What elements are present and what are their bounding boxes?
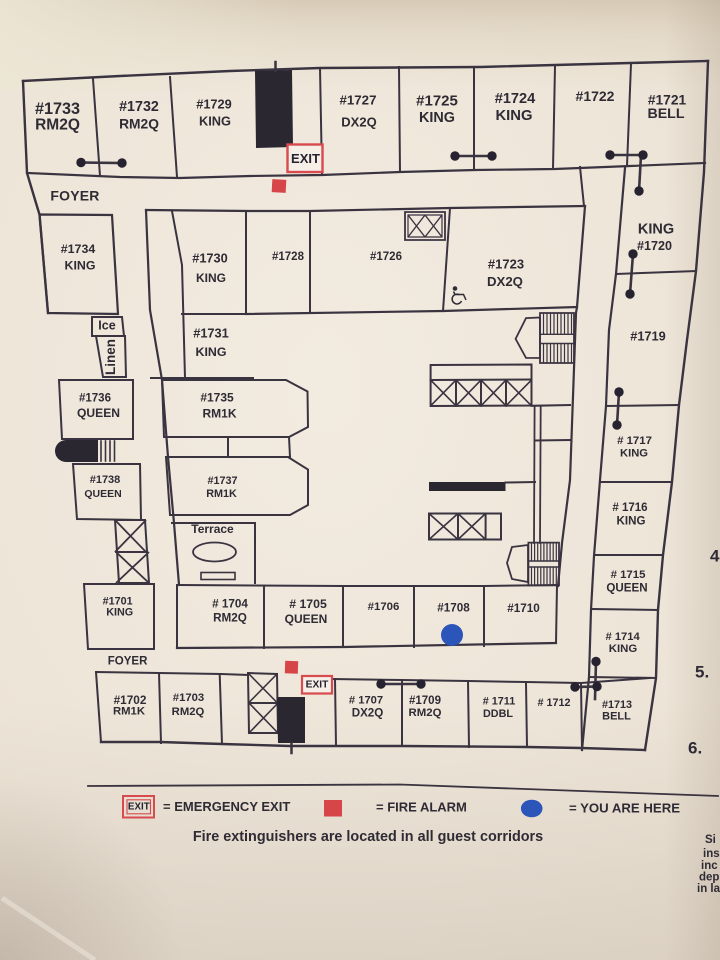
svg-text:# 1714: # 1714 (605, 631, 640, 643)
svg-text:#1703: #1703 (173, 692, 204, 704)
svg-text:BELL: BELL (647, 106, 684, 122)
svg-text:dep: dep (699, 872, 719, 884)
svg-text:Ice: Ice (98, 319, 115, 333)
svg-text:RM2Q: RM2Q (119, 117, 159, 132)
svg-text:QUEEN: QUEEN (77, 406, 120, 420)
svg-text:#1735: #1735 (200, 391, 234, 405)
svg-text:RM2Q: RM2Q (213, 612, 247, 625)
svg-text:KING: KING (196, 345, 227, 359)
svg-text:# 1717: # 1717 (617, 435, 652, 447)
svg-text:#1726: #1726 (370, 251, 402, 263)
svg-text:KING: KING (609, 643, 638, 655)
svg-text:KING: KING (496, 108, 533, 124)
svg-text:#1706: #1706 (368, 601, 400, 613)
svg-text:#1724: #1724 (495, 91, 536, 107)
svg-text:#1729: #1729 (196, 97, 232, 112)
svg-text:EXIT: EXIT (128, 802, 150, 813)
svg-text:BELL: BELL (602, 711, 631, 723)
svg-text:#1728: #1728 (272, 251, 305, 263)
svg-text:5.: 5. (695, 663, 709, 682)
svg-text:# 1711: # 1711 (483, 696, 515, 708)
svg-text:QUEEN: QUEEN (285, 612, 328, 626)
svg-text:#1730: #1730 (192, 251, 228, 266)
svg-text:= YOU ARE HERE: = YOU ARE HERE (569, 801, 680, 816)
svg-text:Linen: Linen (103, 339, 118, 375)
svg-text:#1720: #1720 (637, 239, 672, 253)
svg-text:inc: inc (701, 860, 718, 872)
svg-text:#1736: #1736 (79, 393, 111, 405)
svg-text:FOYER: FOYER (50, 188, 99, 204)
svg-text:DX2Q: DX2Q (341, 115, 376, 130)
svg-text:RM2Q: RM2Q (409, 707, 442, 719)
svg-text:RM2Q: RM2Q (172, 706, 205, 718)
svg-text:= FIRE ALARM: = FIRE ALARM (376, 799, 467, 814)
svg-text:EXIT: EXIT (291, 151, 320, 166)
svg-text:KING: KING (620, 448, 648, 460)
svg-text:# 1704: # 1704 (212, 598, 248, 611)
svg-text:#1708: #1708 (437, 602, 470, 615)
svg-text:ins: ins (703, 848, 720, 860)
svg-text:QUEEN: QUEEN (606, 582, 647, 595)
svg-text:#1737: #1737 (207, 475, 237, 487)
svg-text:#1734: #1734 (61, 242, 96, 256)
svg-text:#1710: #1710 (507, 602, 540, 615)
svg-text:# 1715: # 1715 (611, 569, 647, 581)
svg-text:#1709: #1709 (409, 695, 441, 707)
svg-text:Fire extinguishers are located: Fire extinguishers are located in all gu… (193, 829, 543, 845)
svg-text:# 1707: # 1707 (349, 695, 383, 707)
svg-text:4.: 4. (710, 547, 720, 566)
svg-text:DDBL: DDBL (483, 708, 513, 720)
svg-text:#1723: #1723 (488, 257, 524, 272)
svg-text:#1713: #1713 (602, 699, 632, 711)
svg-text:KING: KING (199, 114, 231, 129)
svg-text:#1725: #1725 (416, 93, 458, 110)
svg-text:RM1K: RM1K (206, 488, 237, 500)
svg-text:KING: KING (196, 271, 226, 285)
svg-text:# 1712: # 1712 (537, 697, 570, 709)
svg-text:KING: KING (617, 515, 646, 528)
svg-text:Terrace: Terrace (191, 522, 234, 536)
svg-text:#1719: #1719 (630, 329, 666, 344)
svg-text:FOYER: FOYER (108, 656, 148, 668)
svg-text:#1727: #1727 (340, 93, 377, 108)
svg-text:DX2Q: DX2Q (352, 707, 384, 720)
svg-text:# 1716: # 1716 (612, 502, 647, 514)
svg-text:#1722: #1722 (576, 88, 615, 104)
svg-text:in la: in la (697, 883, 720, 895)
svg-text:#1732: #1732 (119, 99, 159, 115)
svg-text:#1738: #1738 (90, 474, 121, 486)
svg-text:6.: 6. (688, 739, 702, 758)
svg-text:KING: KING (65, 259, 96, 273)
svg-text:DX2Q: DX2Q (487, 274, 523, 289)
svg-text:KING: KING (638, 222, 674, 238)
svg-text:= EMERGENCY EXIT: = EMERGENCY EXIT (163, 799, 290, 814)
svg-text:# 1705: # 1705 (289, 597, 327, 611)
svg-text:#1731: #1731 (193, 326, 229, 341)
svg-text:RM2Q: RM2Q (35, 117, 80, 134)
svg-text:KING: KING (419, 110, 455, 126)
svg-text:RM1K: RM1K (113, 706, 146, 718)
svg-text:Si: Si (705, 834, 716, 846)
svg-text:KING: KING (106, 607, 133, 619)
svg-text:EXIT: EXIT (306, 679, 329, 690)
svg-text:QUEEN: QUEEN (84, 488, 121, 500)
svg-text:#1733: #1733 (35, 100, 80, 118)
svg-text:RM1K: RM1K (202, 407, 236, 421)
